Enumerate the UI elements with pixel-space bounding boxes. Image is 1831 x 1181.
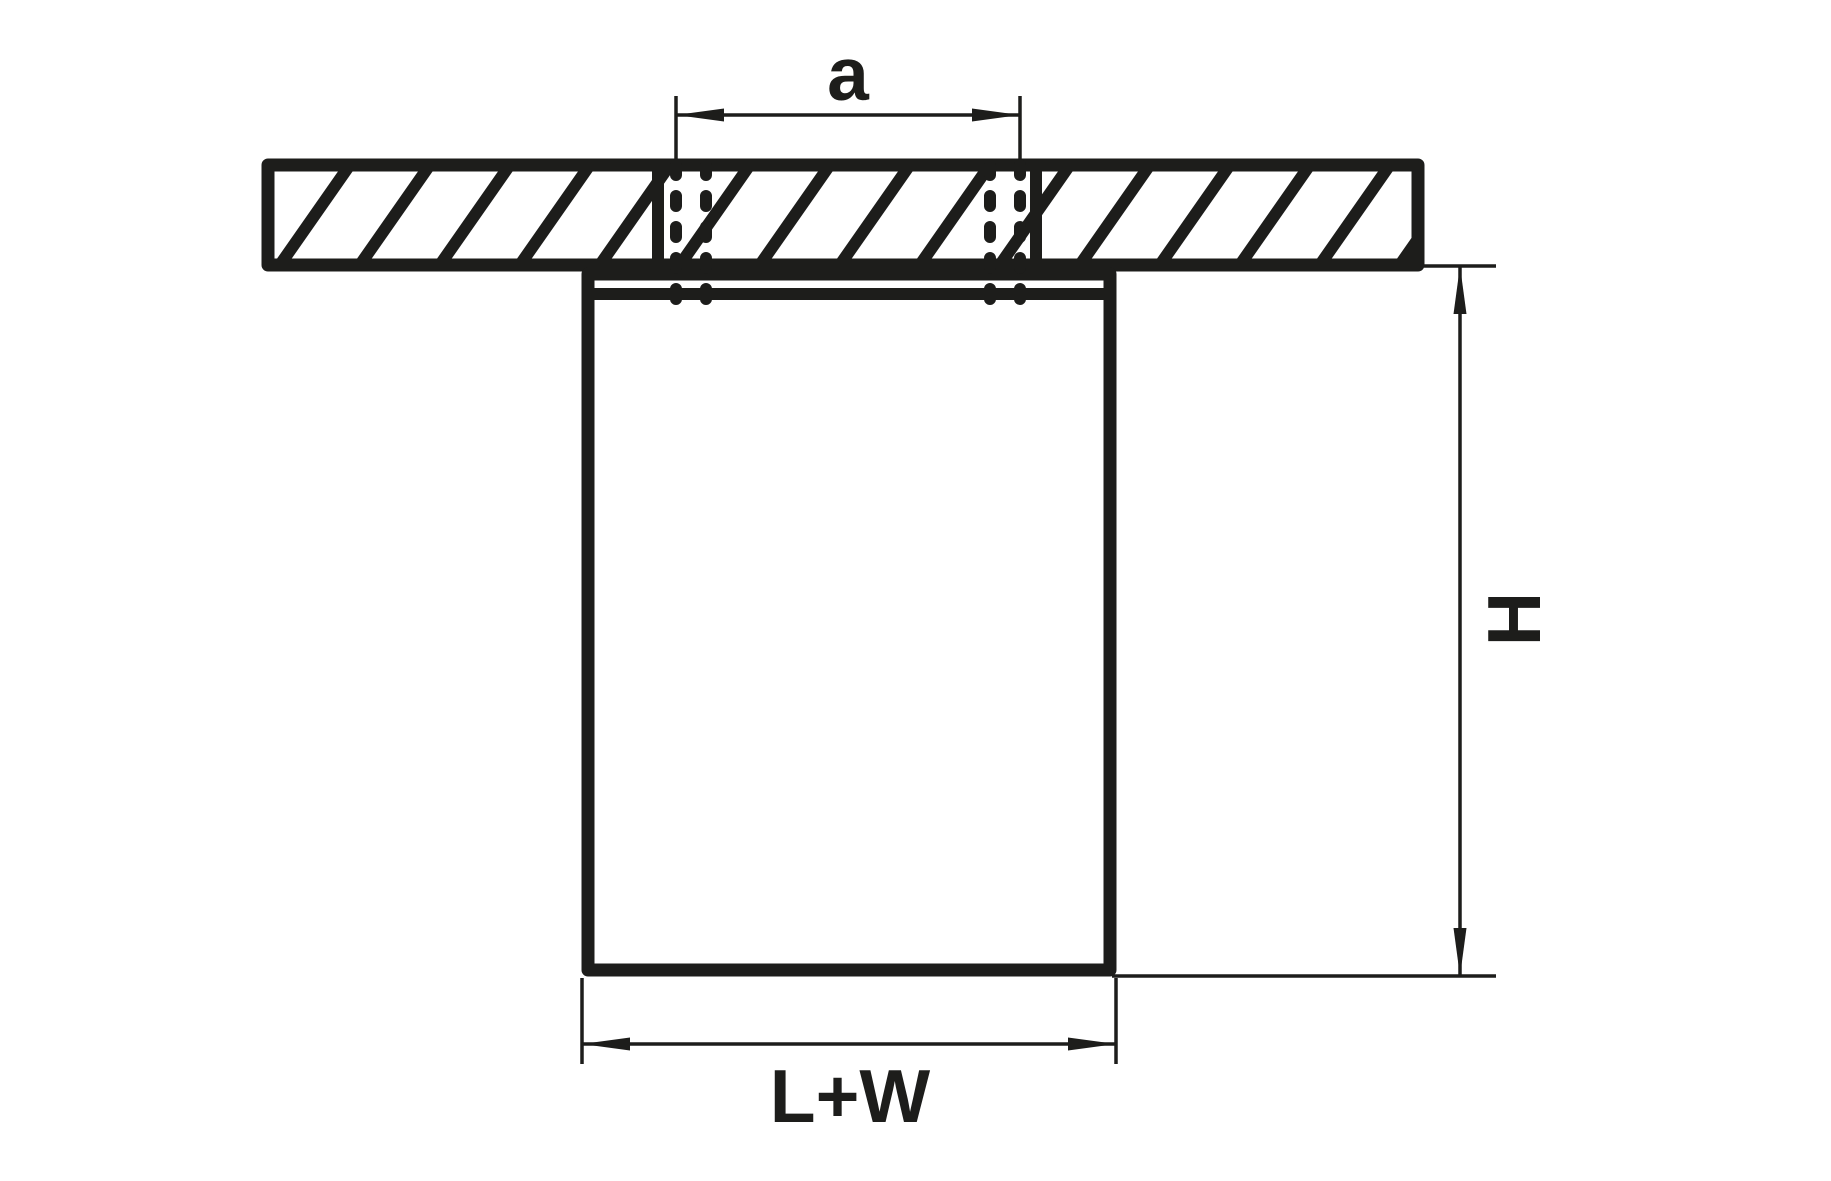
technical-drawing-canvas: a H L+W xyxy=(0,0,1831,1181)
dimension-h: H xyxy=(1112,266,1556,976)
dimension-a-label: a xyxy=(827,32,870,116)
dimension-lw: L+W xyxy=(582,978,1116,1138)
dimension-lw-label: L+W xyxy=(770,1054,931,1138)
arrowhead-right-icon xyxy=(1068,1038,1116,1051)
arrowhead-left-icon xyxy=(582,1038,630,1051)
body-outline xyxy=(588,274,1110,970)
arrowhead-up-icon xyxy=(1454,266,1467,314)
dimension-a: a xyxy=(676,32,1020,160)
dimension-h-label: H xyxy=(1472,592,1556,646)
arrowhead-right-icon xyxy=(972,109,1020,122)
arrowhead-left-icon xyxy=(676,109,724,122)
arrowhead-down-icon xyxy=(1454,928,1467,976)
fixture-body xyxy=(588,274,1110,970)
fixture-mounting-diagram: a H L+W xyxy=(0,0,1831,1181)
ceiling-slab xyxy=(268,165,1418,265)
slab-hatch-fill xyxy=(268,165,1418,265)
